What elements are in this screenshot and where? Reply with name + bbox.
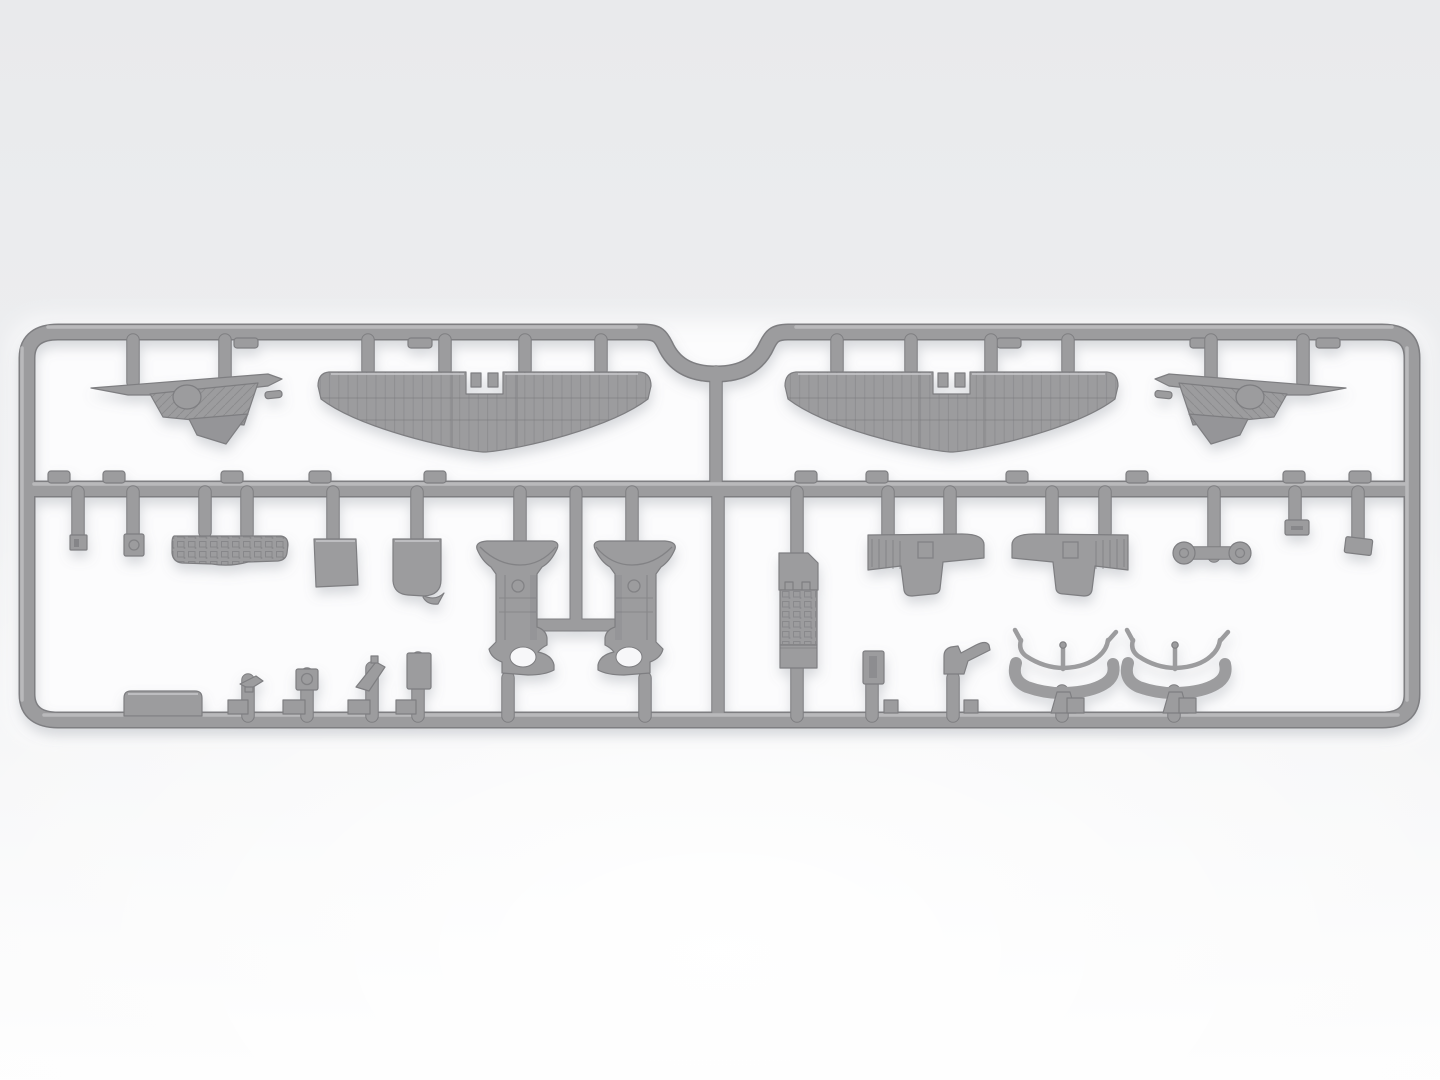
part-equipment-box [124, 691, 202, 716]
part-small-fitting-plate [70, 535, 87, 550]
wheel [1229, 542, 1251, 564]
part-tiny-fitting-d [407, 653, 431, 689]
wheel [1173, 542, 1195, 564]
part-bracket-with-hole [124, 534, 144, 556]
part-engine-block [779, 553, 818, 668]
sprue-render [0, 0, 1440, 1080]
part-side-hatch-plate [863, 651, 884, 684]
part-small-clamp-block [1285, 520, 1309, 535]
part-tiny-fitting-b [296, 669, 318, 690]
render-area: Gray injection-molded plastic sprue (par… [0, 0, 1440, 1080]
part-small-wedge-block [1344, 536, 1373, 555]
part-access-hatch-plate [314, 539, 358, 587]
part-instrument-panel [172, 536, 288, 565]
